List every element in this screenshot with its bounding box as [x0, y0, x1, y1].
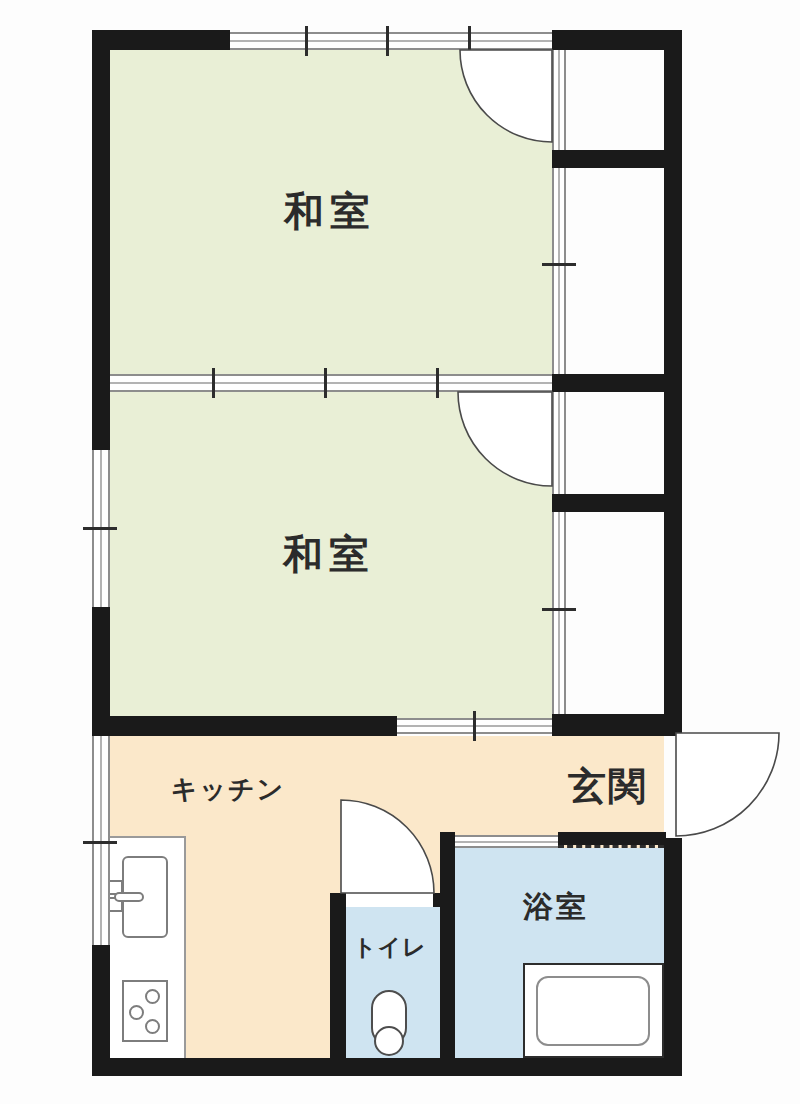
room-label-bathroom: 浴室: [523, 887, 589, 928]
room-label-kitchen: キッチン: [171, 772, 285, 807]
floor-plan: 和室 和室 キッチン 玄関 トイレ 浴室: [0, 0, 800, 1104]
room-label-washitsu-1: 和室: [284, 184, 376, 239]
wall-toilet-left: [330, 893, 346, 1058]
wall-toilet-bathroom: [440, 832, 455, 1058]
fusuma-tick: [212, 368, 215, 398]
fusuma-tick: [436, 368, 439, 398]
wall-closet-bottom: [552, 714, 682, 736]
wall-left-middle: [92, 607, 110, 733]
bathroom-door-track: [455, 835, 558, 848]
toilet-doorway: [346, 893, 433, 907]
window-tick: [83, 841, 117, 844]
wall-bathroom-top: [558, 832, 666, 845]
closet-door-tick: [542, 608, 576, 611]
window-tick: [305, 26, 308, 56]
room-label-washitsu-2: 和室: [283, 527, 375, 582]
window-tick: [468, 26, 471, 56]
fusuma-room-divider: [110, 374, 552, 392]
stove-burner-2: [129, 1005, 144, 1020]
wall-left-upper: [92, 30, 110, 450]
window-tick: [386, 26, 389, 56]
wall-top-left: [92, 30, 230, 50]
wall-closet-2: [552, 374, 682, 392]
room-label-genkan: 玄関: [568, 761, 648, 812]
window-top: [230, 32, 552, 50]
bathtub: [536, 976, 650, 1046]
wall-left-lower: [92, 945, 110, 1076]
sliding-door-tick: [473, 711, 476, 741]
wall-bottom: [92, 1058, 682, 1076]
bathroom-folding-door: [558, 845, 664, 848]
wall-washitsu2-bottom: [92, 716, 397, 736]
faucet-spout: [114, 892, 144, 902]
wall-closet-3: [552, 494, 682, 512]
stove-burner-3: [145, 1019, 160, 1034]
toilet-seat: [374, 1026, 404, 1056]
window-tick: [83, 527, 117, 530]
window-left-kitchen: [92, 733, 110, 945]
wall-closet-1: [552, 150, 682, 168]
room-label-toilet: トイレ: [353, 932, 427, 963]
stove-burner-1: [145, 989, 160, 1004]
closet-door-tick: [542, 263, 576, 266]
door-entrance: [676, 733, 779, 836]
wall-top-right: [552, 30, 682, 50]
fusuma-tick: [324, 368, 327, 398]
wall-right-lower: [664, 838, 682, 1076]
